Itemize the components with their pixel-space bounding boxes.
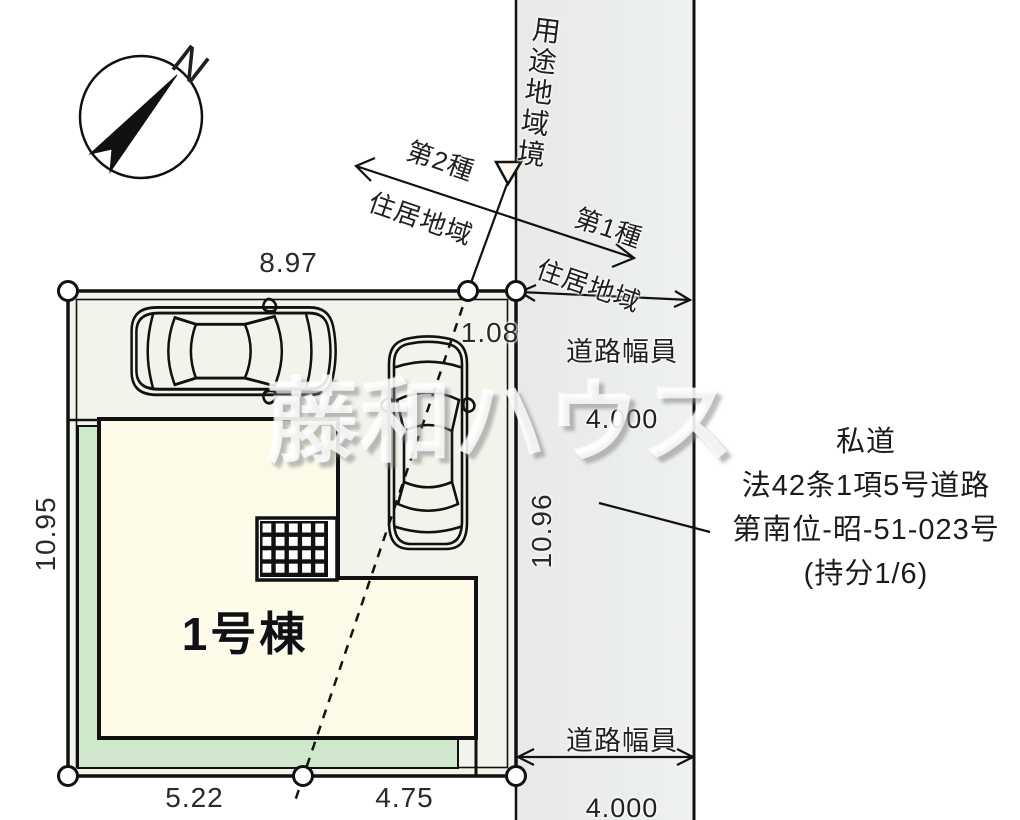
dim-left-height: 10.95 xyxy=(30,493,62,575)
building-label: 1号棟 xyxy=(165,598,325,664)
private-road-note: 私道 法42条1項5号道路 第南位-昭-51-023号 (持分1/6) xyxy=(712,428,1020,604)
site-plan-canvas: N 8.97 1.08 10.95 10.96 5.22 4.75 道路幅員 4… xyxy=(0,0,1020,820)
dim-top-offset: 1.08 xyxy=(455,317,525,349)
dim-bottom-left: 5.22 xyxy=(152,782,237,814)
dim-bottom-right: 4.75 xyxy=(362,782,447,814)
note-line-1: 私道 xyxy=(712,428,1020,457)
compass-needle xyxy=(90,75,177,172)
zone-left-line2: 住居地域 xyxy=(365,187,477,251)
porch-grid-tiles xyxy=(263,524,327,575)
dim-top-width: 8.97 xyxy=(246,247,331,279)
watermark: 藤和ハウス xyxy=(266,348,736,481)
road-width-caption-bottom: 道路幅員 4.000 xyxy=(525,691,685,820)
note-line-4: (持分1/6) xyxy=(712,560,1020,589)
note-line-2: 法42条1項5号道路 xyxy=(712,472,1020,501)
road-width-value: 4.000 xyxy=(586,793,659,820)
zone-left-line1: 第2種 xyxy=(403,135,478,186)
note-line-3: 第南位-昭-51-023号 xyxy=(712,516,1020,545)
road-width-text: 道路幅員 xyxy=(566,726,678,756)
zone-right-line2: 住居地域 xyxy=(533,254,645,318)
zone-right-line1: 第1種 xyxy=(571,202,646,253)
dim-road-side-height: 10.96 xyxy=(526,490,558,572)
